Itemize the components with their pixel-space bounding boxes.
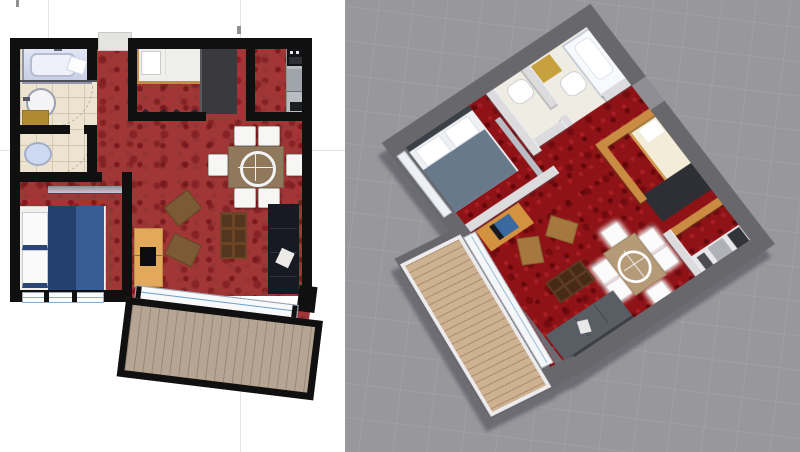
table-crosshair [238,167,274,168]
wall-right [302,38,312,290]
wall-kitchen [246,112,312,121]
tv [140,247,156,266]
table-crosshair [255,153,256,181]
wall-closet [128,38,137,120]
oven-knob [296,51,299,54]
single-bed-fold [165,49,166,75]
oven-knob [290,51,293,54]
wall-bathroom [87,42,97,80]
entrance-recess [98,32,132,51]
bed-pillow [22,250,48,288]
tv-stand [134,228,163,287]
sofa-seam [270,276,297,277]
wall-bathroom [10,125,70,134]
coffee-table-panel [235,230,245,242]
coffee-table-panel [222,230,232,242]
apartment-2d [10,38,316,388]
dining-chair [234,188,256,208]
laptop [577,319,592,334]
bathtub [22,46,92,84]
wall-top [130,38,312,49]
dining-chair [234,126,256,146]
window-glass-line [23,297,103,298]
ruler-tick [237,26,241,34]
coffee-table-panel [222,245,232,257]
wall-left [10,38,20,302]
window-mullion [72,290,77,302]
coffee-table-panel [235,245,245,257]
floor-plan-viewer [0,0,800,452]
toilet [24,142,52,166]
window-mullion [44,290,49,302]
wall-bathroom [84,125,97,134]
bathroom-divider [20,80,97,82]
plan-2d-canvas[interactable] [0,0,345,452]
dining-chair [208,154,228,176]
coffee-table [220,212,247,259]
bed-duvet-light [76,206,104,292]
bed-pillow [22,212,48,250]
sliding-door-frame [135,286,141,299]
coffee-table-panel [235,215,245,227]
single-bed-pillow [141,51,161,75]
sink-tap [23,97,30,101]
sofa [268,204,299,294]
wardrobe [200,46,237,114]
wall-kitchen [246,38,255,120]
balcony-group [118,284,317,391]
dining-chair [258,126,280,146]
apartment-3d [345,14,769,421]
sofa-seam [270,228,297,229]
bedroom-window [22,292,104,303]
dining-table [228,146,284,188]
sofa-pillow [275,248,294,268]
vertical-guide-line [48,0,49,38]
ruler-tick [16,0,19,7]
coffee-table-panel [222,215,232,227]
wall-bedroom [10,172,102,182]
wall-bedroom [122,172,132,302]
wall-top [10,38,98,49]
table-turntable-ring [240,151,276,187]
sliding-door-frame [291,305,297,318]
sofa-seam [594,305,609,324]
plan-3d-canvas[interactable] [345,0,800,452]
bedroom-shelf [48,186,124,194]
wall-closet [128,112,206,121]
